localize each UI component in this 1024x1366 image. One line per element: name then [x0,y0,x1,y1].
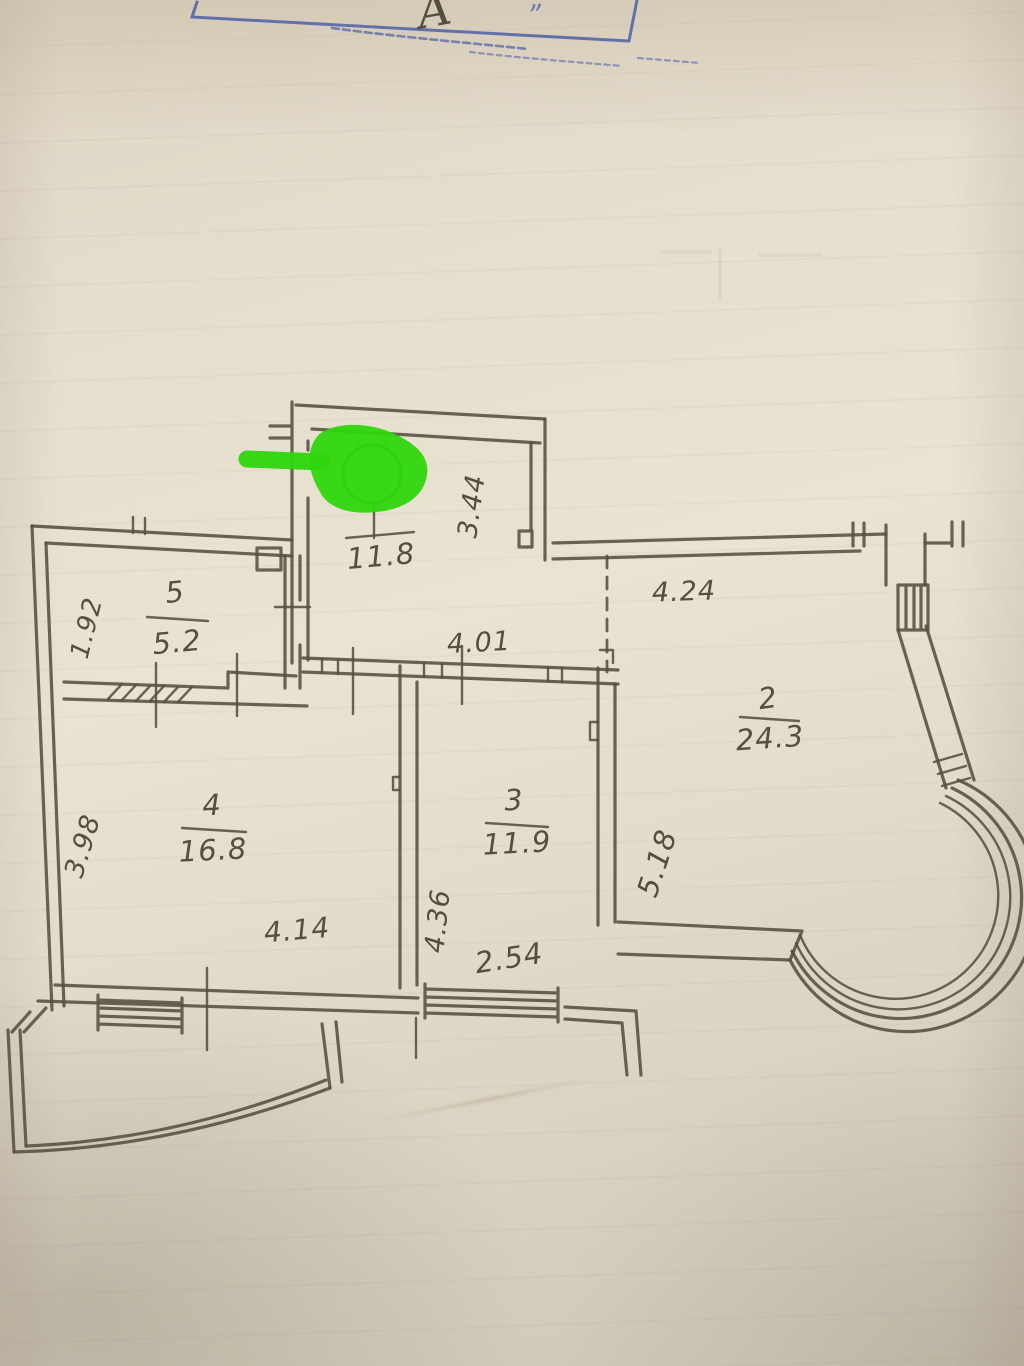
room3-number: 3 [503,783,524,818]
room4-bottom-window [98,995,182,1033]
faint-ghost-marks [660,250,820,300]
dim-room4-bottom: 4.14 [263,911,332,950]
balcony-right-edge [322,1022,342,1088]
green-highlight-blob [310,425,428,513]
floor-plan-drawing [0,0,1024,1366]
stamp-quote-mark: ” [528,0,547,32]
dim-room2-top: 4.24 [651,575,716,608]
room5-bottom-wall [64,672,307,706]
room3-bottom-window [425,984,558,1022]
room2-slanted-wall [898,626,974,788]
stamp-microtext-row [638,58,700,63]
hall-left-wall [270,402,308,663]
stamp-border [192,0,637,41]
room5-number: 5 [164,574,187,610]
room2-right-window [898,585,928,630]
room3-right-wall [598,668,615,925]
room2-right-wall [886,525,925,585]
room3-room4-divider [400,666,417,988]
room4-area: 16.8 [178,831,248,869]
balcony-left-edge [8,1030,26,1152]
dimension-tick [353,646,462,714]
bay-window-arc-inner [800,803,998,999]
room2-top-wall [553,534,886,559]
room2-bottom-wall [618,922,802,960]
left-outer-wall [32,526,64,1010]
room5-top-wall [32,526,292,556]
hall-door-block [519,531,532,547]
balcony-corner-join [12,1008,46,1032]
dimension-tick [156,654,237,727]
room5-door-block [257,548,281,570]
hall-area-label: 11.8 [345,536,416,576]
room5-area: 5.2 [151,623,203,661]
room2-area: 24.3 [735,719,806,758]
dim-room3-top: 4.01 [446,626,512,660]
plan-linework [8,250,1024,1152]
hall-bottom-wall [303,658,618,684]
balcony-curved-edge [14,1080,330,1152]
room4-number: 4 [201,788,222,823]
loggia-step [565,1007,641,1075]
room4-bottom-wall [38,985,418,1013]
bay-window-arc [796,796,1010,1009]
stamp-microtext-row [470,52,622,66]
room3-area: 11.9 [482,824,552,862]
floor-plan-photo: А ” 11.8 3.44 5 5.2 1.92 4 16.8 3.98 4.1… [0,0,1024,1366]
